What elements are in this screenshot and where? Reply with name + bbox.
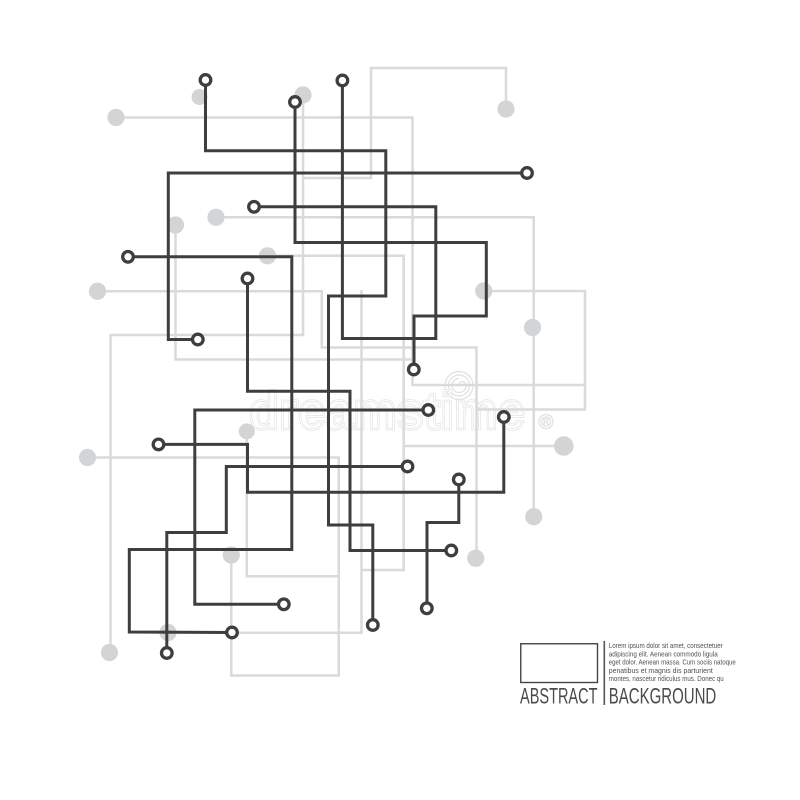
svg-text:BACKGROUND: BACKGROUND (609, 684, 717, 709)
svg-text:R: R (543, 418, 549, 427)
svg-text:ABSTRACT: ABSTRACT (520, 684, 598, 709)
svg-text:montes, nascetur ridiculus mus: montes, nascetur ridiculus mus. Donec qu (609, 674, 724, 683)
